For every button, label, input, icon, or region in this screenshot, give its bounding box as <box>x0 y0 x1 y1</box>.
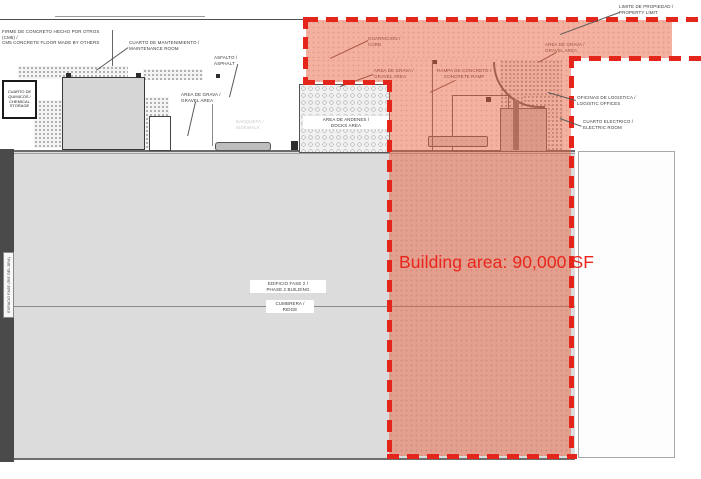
equipment-pad <box>291 141 298 150</box>
yard-line-2 <box>212 104 213 146</box>
property-line <box>0 19 306 20</box>
gravel-left-label: AREA DE GRAVA / GRAVEL AREA <box>181 92 221 103</box>
building-area-callout: Building area: 90,000 SF <box>399 252 594 273</box>
adjacent-building-footprint <box>578 151 675 458</box>
small-room <box>149 116 171 151</box>
highlight-border-top <box>306 17 701 22</box>
docks-area-label: AREA DE ANDENES / DOCKS AREA <box>303 116 389 129</box>
leader-asphalt <box>229 64 238 97</box>
column-marker <box>136 73 141 78</box>
highlight-border-top-right <box>569 56 701 61</box>
speed-bump <box>215 142 271 151</box>
leader-gravel-left <box>187 102 196 136</box>
site-plan-screenshot: ESPACIO FASE (RIE DEL DRA) <box>0 0 701 479</box>
highlight-border-inner-left <box>387 80 392 460</box>
asphalt-label: ASFALTO / ASPHALT <box>214 55 237 66</box>
highlight-overlay-block <box>306 58 389 82</box>
column-marker <box>216 74 220 78</box>
maintenance-room-roof <box>62 77 145 150</box>
phase2-building-label: EDIFICIO FASE 2 / PHASE 2 BUILDING <box>250 280 326 293</box>
sidewalk-label: BANQUETA / SIDEWALK <box>236 119 264 130</box>
gravel-texture-4 <box>34 100 62 148</box>
ridge-label: CUMBRERA / RIDGE <box>266 300 314 313</box>
maintenance-room-label: CUARTO DE MANTENIMIENTO / MAINTENANCE RO… <box>129 40 199 51</box>
side-strip-label: ESPACIO FASE (RIE DEL DRA) <box>7 257 11 313</box>
logistic-offices-label: OFICINAS DE LOGISTICA / LOGISTIC OFFICES <box>577 95 636 106</box>
electric-room-label: CUARTO ELECTRICO / ELECTRIC ROOM <box>583 119 633 130</box>
highlight-border-bottom <box>387 454 577 459</box>
side-strip-tag: ESPACIO FASE (RIE DEL DRA) <box>3 252 14 318</box>
highlight-overlay-top-strip <box>306 20 672 58</box>
chemical-storage-room: CUARTO DE QUIMICOS / CHEMICAL STORAGE <box>2 80 37 119</box>
fence-line <box>55 16 205 17</box>
concrete-floor-note: FIRME DE CONCRETO HECHO POR OTROS (CM5) … <box>2 29 99 46</box>
gravel-texture-2 <box>143 69 203 80</box>
property-limit-label: LIMITE DE PROPIEDAD / PROPERTY LIMIT <box>619 4 673 15</box>
highlight-border-step-h <box>303 80 392 85</box>
highlight-border-left <box>303 17 308 85</box>
column-marker <box>66 73 71 78</box>
